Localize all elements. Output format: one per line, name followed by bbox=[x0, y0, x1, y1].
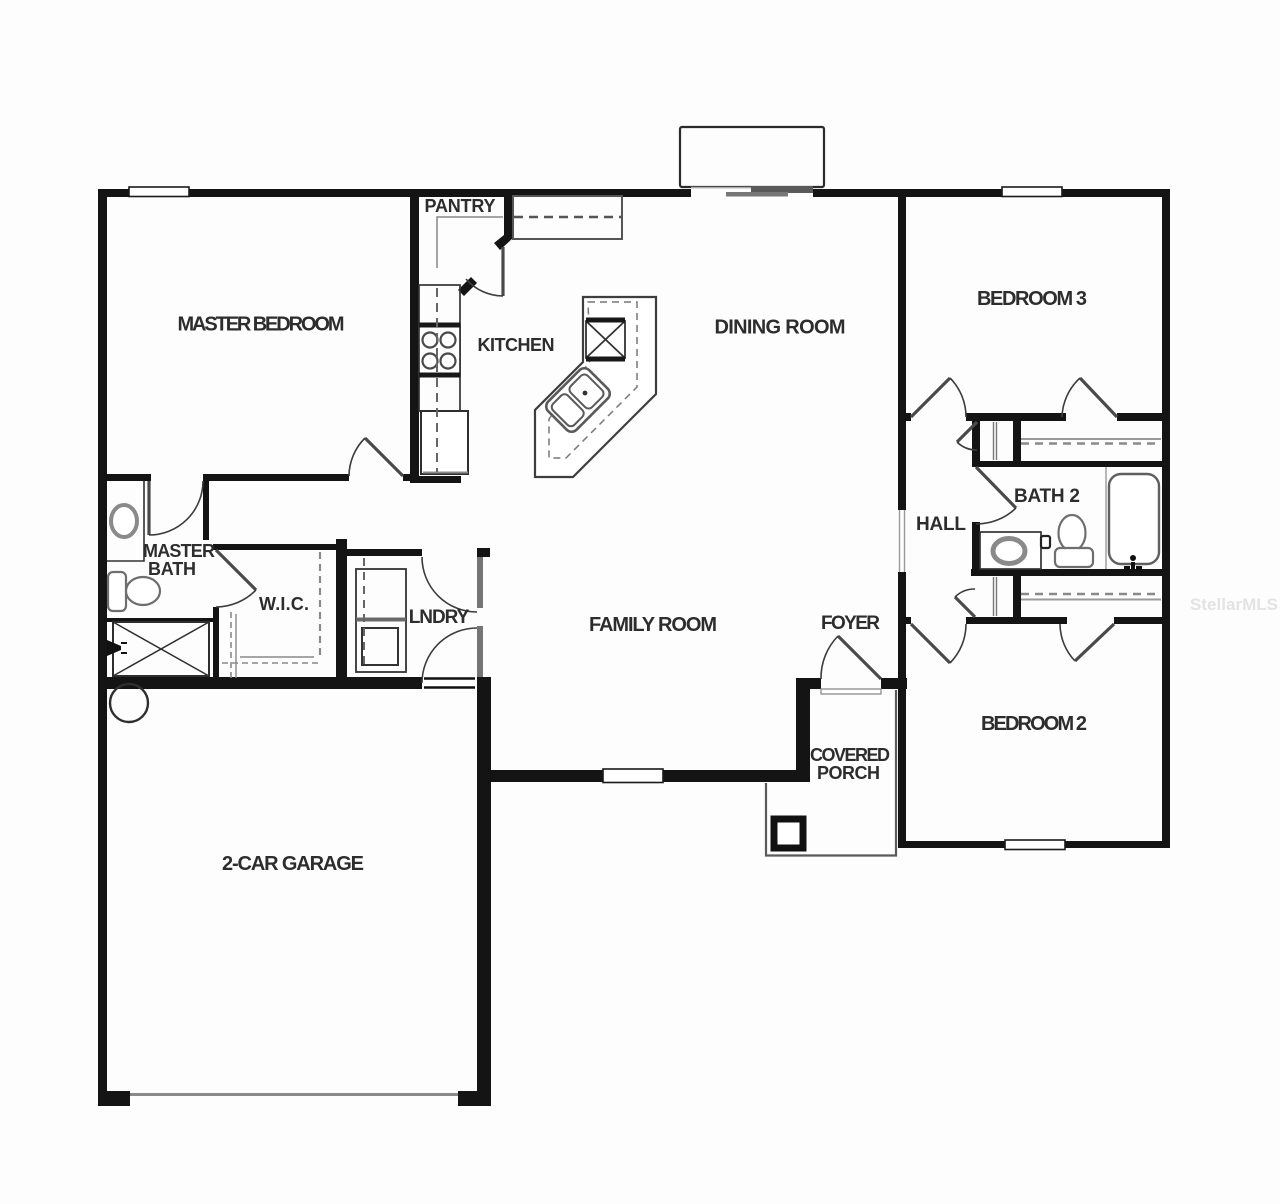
svg-text:StellarMLS: StellarMLS bbox=[1190, 595, 1278, 614]
svg-text:MASTER: MASTER bbox=[143, 541, 215, 561]
svg-text:BATH: BATH bbox=[148, 559, 196, 579]
svg-text:BATH 2: BATH 2 bbox=[1014, 486, 1080, 507]
svg-text:DINING ROOM: DINING ROOM bbox=[715, 317, 846, 339]
svg-text:HALL: HALL bbox=[916, 514, 966, 535]
svg-text:PORCH: PORCH bbox=[817, 763, 880, 783]
svg-text:BEDROOM 3: BEDROOM 3 bbox=[977, 288, 1087, 310]
svg-text:KITCHEN: KITCHEN bbox=[478, 335, 555, 355]
svg-text:FAMILY ROOM: FAMILY ROOM bbox=[589, 614, 717, 636]
svg-text:LNDRY: LNDRY bbox=[409, 607, 470, 628]
svg-text:2-CAR GARAGE: 2-CAR GARAGE bbox=[222, 853, 364, 875]
svg-text:PANTRY: PANTRY bbox=[425, 196, 496, 216]
svg-text:FOYER: FOYER bbox=[821, 613, 880, 634]
svg-text:MASTER BEDROOM: MASTER BEDROOM bbox=[178, 314, 345, 336]
svg-text:COVERED: COVERED bbox=[810, 745, 890, 765]
svg-text:W.I.C.: W.I.C. bbox=[259, 594, 309, 614]
svg-text:BEDROOM 2: BEDROOM 2 bbox=[981, 713, 1087, 735]
